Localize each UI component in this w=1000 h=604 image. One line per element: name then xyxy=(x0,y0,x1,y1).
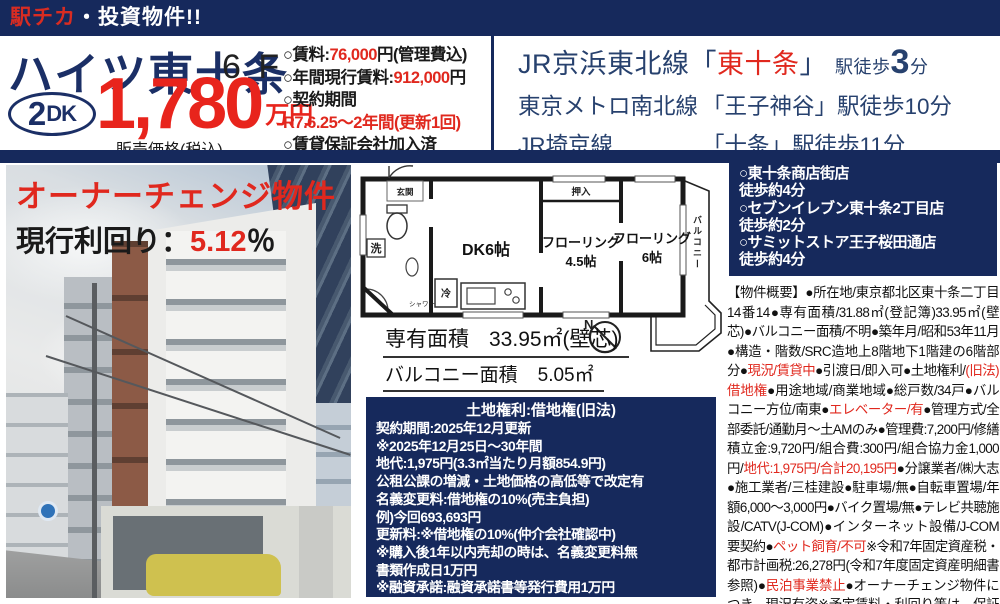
store-line: ○サミットストア王子桜田通店 xyxy=(739,234,997,251)
bracket: 」 xyxy=(800,49,828,79)
rent-bullet: R7.6.25〜2年間(更新1回) xyxy=(283,112,491,135)
rent-bullet: ○契約期間 xyxy=(283,89,491,112)
area-main: 専有面積33.95㎡(壁芯) xyxy=(383,323,629,358)
entrance-door-arc xyxy=(389,166,413,178)
land-rights-line: 更新料:※借地権の10%(仲介会社確認中) xyxy=(376,526,706,544)
area-main-label: 専有面積 xyxy=(385,328,469,351)
station-walk: 「王子神谷」駅徒歩10分 xyxy=(702,89,952,121)
bracket: 「 xyxy=(690,49,718,79)
store-walk-line: 徒歩約2分 xyxy=(739,217,997,234)
rail-line-name: JR京浜東北線 xyxy=(518,49,690,79)
area-main-value: 33.95㎡(壁芯) xyxy=(489,328,619,351)
room-label-dk: DK6帖 xyxy=(462,240,510,259)
room-label-flooring1: フローリング xyxy=(542,235,620,250)
flyer-page: 駅チカ・投資物件!! ハイツ東十条 6 F 2 DK 1,780 万円 販売価格… xyxy=(0,0,1000,604)
owner-change-label: オーナーチェンジ物件 xyxy=(16,171,336,216)
layout-badge: 2 DK xyxy=(8,92,96,136)
rail-line-name: 東京メトロ南北線 xyxy=(518,89,702,121)
land-rights-title: 土地権利:借地権(旧法) xyxy=(376,402,706,420)
room-label-entrance: 玄関 xyxy=(396,187,413,197)
balcony-label: バルコニー xyxy=(691,215,704,270)
door-gap xyxy=(429,199,437,227)
nearby-stores-box: ○東十条商店街店 徒歩約4分 ○セブンイレブン東十条2丁目店 徒歩約2分 ○サミ… xyxy=(729,158,997,276)
land-rights-line: 地代:1,975円(3.3㎡当たり月額854.9円) xyxy=(376,455,706,473)
property-overview: 【物件概要】●所在地/東京都北区東十条二丁目14番14●専有面積/31.88㎡(… xyxy=(727,283,999,601)
photo-storefront-pillar xyxy=(299,506,333,598)
yield-value: 5.12 xyxy=(190,226,246,258)
store-line: ○東十条商店街店 xyxy=(739,165,997,182)
station-name: 東十条 xyxy=(717,49,800,79)
land-rights-box: 土地権利:借地権(旧法) 契約期間:2025年12月更新 ※2025年12月25… xyxy=(366,397,716,597)
walk-unit: 分 xyxy=(910,57,929,77)
unit-outline xyxy=(363,179,683,315)
access-row-2: 東京メトロ南北線「王子神谷」駅徒歩10分 xyxy=(518,89,996,121)
room-label-closet: 押入 xyxy=(571,186,591,198)
access-row-1: JR京浜東北線「東十条」 駅徒歩3分 xyxy=(518,42,996,82)
land-rights-line: 書類作成日1万円 xyxy=(376,562,706,580)
room-label-flooring2-size: 6帖 xyxy=(642,250,662,265)
area-balcony-label: バルコニー面積 xyxy=(385,365,518,386)
door-gap xyxy=(539,253,547,287)
room-label-shower: シャワー xyxy=(409,300,435,308)
room-label-fridge: 冷 xyxy=(441,287,451,300)
yield-unit: ％ xyxy=(246,226,275,258)
room-label-flooring2: フローリング xyxy=(613,231,691,246)
area-balcony-value: 5.05㎡ xyxy=(538,365,594,386)
walk-minutes: 3 xyxy=(891,43,910,81)
land-rights-line: 名義変更料:借地権の10%(売主負担) xyxy=(376,491,706,509)
building-photo: オーナーチェンジ物件 現行利回り：5.12％ xyxy=(6,165,351,598)
store-walk-line: 徒歩約4分 xyxy=(739,251,997,268)
land-rights-line: 例)今回693,693円 xyxy=(376,509,706,527)
photo-round-sign xyxy=(38,501,58,521)
walk-label: 駅徒歩 xyxy=(835,57,891,77)
price-value: 1,780 xyxy=(96,66,261,142)
floorplan-zone: N 玄関 洗 シャワー DK6帖 冷 押入 フローリング 4.5帖 フローリング… xyxy=(353,163,730,395)
room-label-wash: 洗 xyxy=(371,241,382,255)
station-access: JR京浜東北線「東十条」 駅徒歩3分 東京メトロ南北線「王子神谷」駅徒歩10分 … xyxy=(518,42,996,160)
rent-bullet: ○賃料:76,000円(管理費込) xyxy=(283,44,491,67)
top-banner: 駅チカ・投資物件!! xyxy=(0,0,1000,36)
area-balcony: バルコニー面積5.05㎡ xyxy=(383,360,604,392)
layout-badge-number: 2 xyxy=(28,95,46,133)
land-rights-line: ※購入後1年以内売却の時は、名義変更料無 xyxy=(376,544,706,562)
store-walk-line: 徒歩約4分 xyxy=(739,182,997,199)
header-band: ハイツ東十条 6 F 2 DK 1,780 万円 販売価格(税込) ○賃料:76… xyxy=(0,36,1000,150)
yield-line: 現行利回り：5.12％ xyxy=(16,218,336,260)
header-divider xyxy=(491,36,494,150)
land-rights-line: 公租公課の増減・土地価格の高低等で改定有 xyxy=(376,473,706,491)
land-rights-line: ※2025年12月25日〜30年間 xyxy=(376,438,706,456)
layout-badge-type: DK xyxy=(46,101,76,127)
photo-overlay: オーナーチェンジ物件 現行利回り：5.12％ xyxy=(16,171,336,260)
price-row: 1,780 万円 xyxy=(96,66,313,142)
rent-bullet-list: ○賃料:76,000円(管理費込) ○年間現行賃料:912,000円 ○契約期間… xyxy=(283,44,491,157)
land-rights-line: ※融資承諾:融資承諾書等発行費用1万円 xyxy=(376,579,706,597)
rent-bullet: ○年間現行賃料:912,000円 xyxy=(283,67,491,90)
land-rights-line: 契約期間:2025年12月更新 xyxy=(376,420,706,438)
photo-yellow-tarp xyxy=(146,554,281,596)
store-line: ○セブンイレブン東十条2丁目店 xyxy=(739,200,997,217)
room-label-flooring1-size: 4.5帖 xyxy=(565,254,596,269)
yield-label: 現行利回り： xyxy=(16,226,190,258)
